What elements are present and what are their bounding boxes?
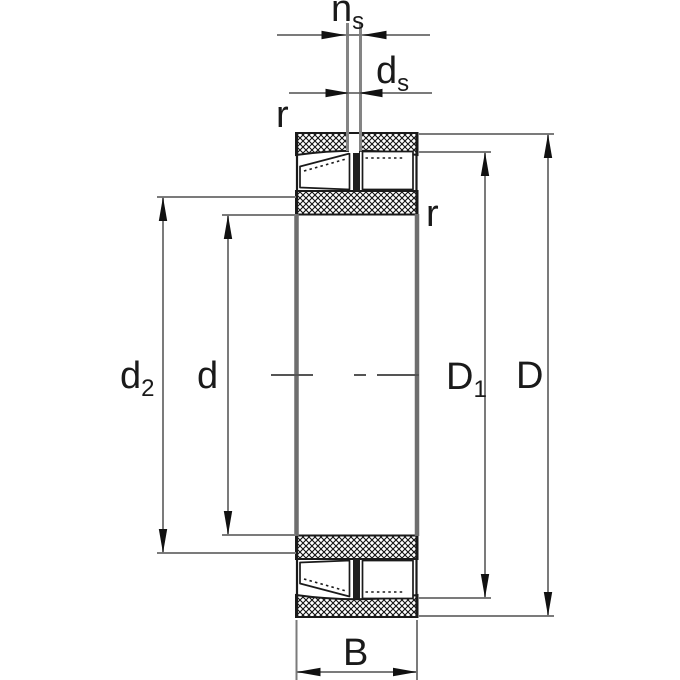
arrow-d-down [224, 511, 232, 535]
inner-ring-top-section [296, 191, 418, 215]
roller-bottom-left [300, 561, 350, 597]
label-r-left-text: r [276, 94, 289, 136]
label-ns-sub: s [352, 8, 364, 35]
label-r-left: r [276, 96, 289, 134]
arrow-D1-down [481, 574, 489, 598]
roller-bottom-right [363, 561, 414, 599]
label-ds-sub: s [397, 70, 409, 97]
label-ns: ns [331, 0, 364, 34]
label-D1: D1 [446, 358, 487, 402]
inner-ring-bottom-section [296, 536, 418, 560]
roller-top-right [363, 152, 414, 190]
arrow-d-up [224, 215, 232, 239]
label-ns-base: n [331, 0, 352, 30]
guide-flange-top [353, 152, 360, 192]
arrow-B-left [297, 668, 321, 676]
label-r-right: r [426, 195, 439, 233]
label-ds: ds [376, 52, 409, 96]
drawing-canvas [0, 0, 680, 680]
label-d2: d2 [120, 357, 155, 401]
arrow-B-right [393, 668, 417, 676]
label-D1-base: D [446, 356, 473, 398]
bearing-dimension-drawing: ns ds r r d2 d D1 D B [0, 0, 680, 680]
arrow-ns-right [363, 31, 387, 39]
label-d: d [197, 357, 218, 395]
arrow-D1-up [481, 152, 489, 176]
arrow-d2-down [159, 529, 167, 553]
arrow-ds-left [326, 89, 350, 97]
label-d2-sub: 2 [141, 375, 154, 402]
guide-flange-bottom [353, 559, 360, 599]
label-D1-sub: 1 [473, 376, 486, 403]
label-B-text: B [343, 632, 368, 674]
arrow-D-down [544, 592, 552, 616]
label-r-right-text: r [426, 193, 439, 235]
label-d-text: d [197, 355, 218, 397]
label-d2-base: d [120, 355, 141, 397]
roller-top-left [300, 154, 350, 190]
arrow-D-up [544, 134, 552, 158]
lube-hole-gap [349, 134, 359, 153]
label-D: D [516, 357, 543, 395]
label-B: B [343, 634, 368, 672]
arrow-d2-up [159, 197, 167, 221]
label-ds-base: d [376, 50, 397, 92]
label-D-text: D [516, 355, 543, 397]
